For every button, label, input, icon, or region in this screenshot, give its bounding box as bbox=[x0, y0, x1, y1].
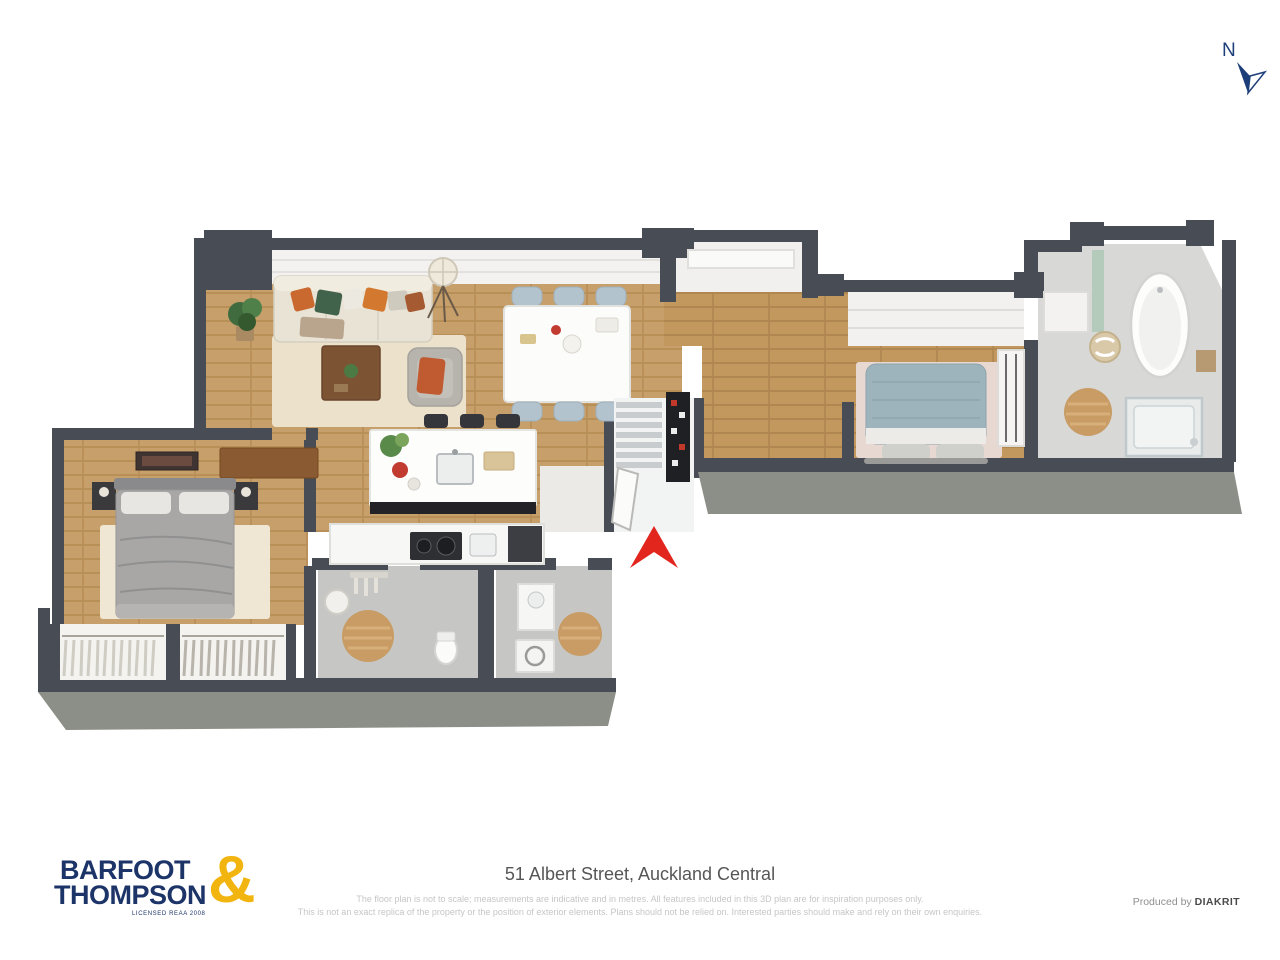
floorplan-3d bbox=[0, 0, 1280, 960]
pillow-green bbox=[314, 289, 343, 316]
round-mat bbox=[558, 612, 602, 656]
disclaimer-line1: The floor plan is not to scale; measurem… bbox=[0, 893, 1280, 906]
sideboard bbox=[220, 448, 318, 478]
bathroom-vanity bbox=[1044, 292, 1088, 332]
laundry-bathroom-floor bbox=[318, 566, 478, 684]
kitchen-sink bbox=[470, 534, 496, 556]
bookshelf bbox=[666, 392, 690, 482]
hallway-floor-leg bbox=[702, 346, 848, 464]
kitchen-island bbox=[370, 414, 536, 514]
pillow bbox=[882, 444, 930, 460]
bedside-lamp bbox=[99, 487, 109, 497]
dining-set bbox=[504, 287, 630, 421]
towel-basket bbox=[1090, 332, 1120, 362]
bedside-lamp bbox=[241, 487, 251, 497]
washing-machine bbox=[516, 640, 554, 672]
produced-by: Produced by DIAKRIT bbox=[1133, 896, 1240, 908]
bedroom2-bed bbox=[864, 364, 988, 464]
bedroom2-window-bay bbox=[848, 292, 1024, 346]
dining-chair bbox=[596, 287, 626, 306]
kitchen-counter bbox=[330, 524, 544, 564]
alcove-top-wall bbox=[664, 230, 818, 242]
north-label: N bbox=[1222, 40, 1236, 62]
disclaimer-line2: This is not an exact replica of the prop… bbox=[0, 906, 1280, 919]
property-address: 51 Albert Street, Auckland Central bbox=[0, 864, 1280, 885]
towel-shelf bbox=[1196, 350, 1216, 372]
pillow bbox=[936, 444, 984, 460]
right-wing-wall-face bbox=[698, 472, 1242, 514]
alcove-bench bbox=[688, 250, 794, 268]
stairwell bbox=[612, 392, 694, 532]
wall-pier-topleft bbox=[204, 230, 272, 290]
table-plant bbox=[344, 364, 358, 378]
kitchen-appliance bbox=[508, 526, 542, 562]
bar-stool bbox=[460, 414, 484, 428]
armchair-throw bbox=[416, 357, 446, 396]
bar-stool bbox=[496, 414, 520, 428]
hallway-floor-top bbox=[664, 292, 848, 346]
pillow-white bbox=[342, 288, 365, 311]
pillow bbox=[179, 492, 229, 514]
produced-by-name: DIAKRIT bbox=[1195, 896, 1240, 908]
produced-by-prefix: Produced by bbox=[1133, 896, 1192, 908]
round-bath-mat bbox=[1064, 388, 1112, 436]
dining-chair bbox=[554, 402, 584, 421]
sofa bbox=[274, 276, 432, 342]
dining-chair bbox=[512, 287, 542, 306]
bedroom2-wardrobe bbox=[998, 350, 1024, 446]
inner-hall-floor bbox=[540, 466, 612, 532]
bedroom2 bbox=[864, 350, 1024, 464]
left-block-wall-face bbox=[38, 692, 616, 730]
dining-chair bbox=[554, 287, 584, 306]
berry-bowl bbox=[392, 462, 408, 478]
entrance-arrow bbox=[630, 526, 678, 568]
pillow bbox=[121, 492, 171, 514]
armchair bbox=[408, 348, 462, 406]
pillow-rust bbox=[404, 291, 425, 312]
master-bed bbox=[114, 478, 236, 618]
island-sink bbox=[437, 454, 473, 484]
shower-head bbox=[1190, 438, 1198, 446]
master-wardrobe bbox=[50, 624, 296, 680]
coffee-table bbox=[322, 346, 380, 400]
bar-stool bbox=[424, 414, 448, 428]
sofa-throw bbox=[299, 316, 344, 339]
glass-partition bbox=[1092, 250, 1104, 332]
round-mat bbox=[342, 610, 394, 662]
floorplan-page: N BARFOOT THOMPSON & LICENSED REAA 2008 … bbox=[0, 0, 1280, 960]
cutting-board bbox=[484, 452, 514, 470]
laundry-hamper bbox=[325, 590, 349, 614]
north-arrow-icon bbox=[1237, 62, 1265, 93]
towel-rack bbox=[350, 572, 388, 578]
